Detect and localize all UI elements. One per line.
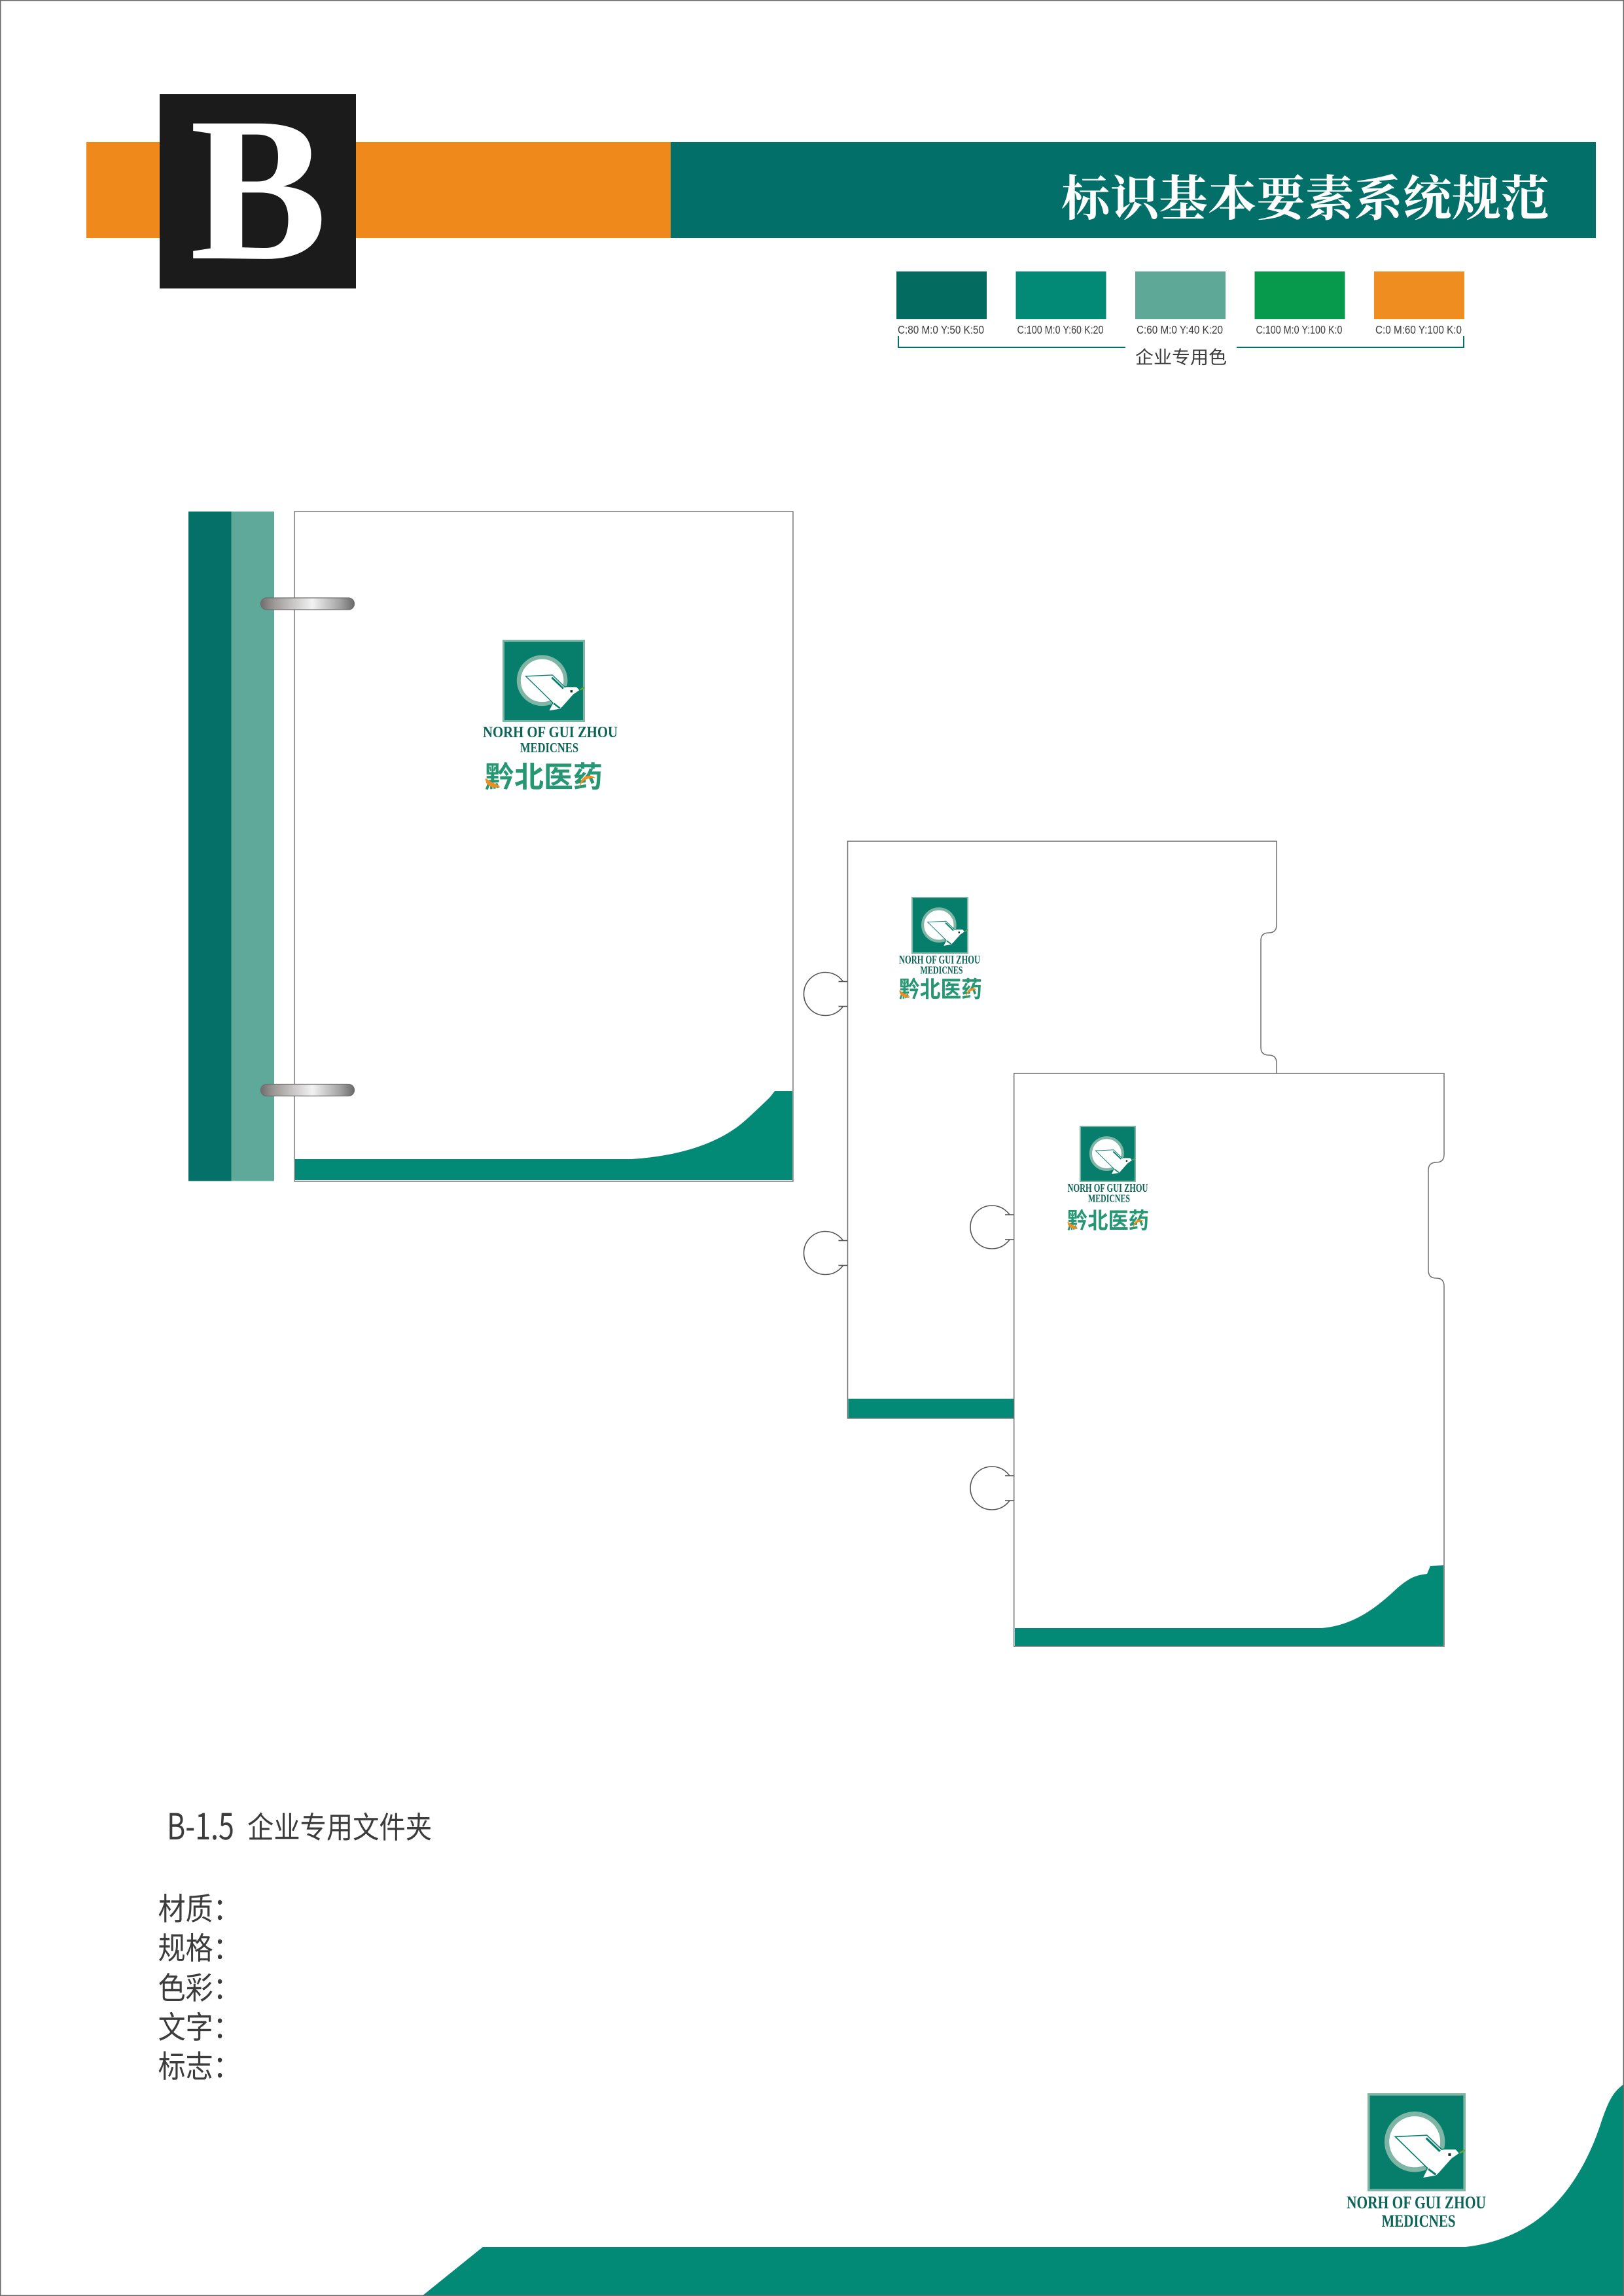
svg-text:C:60 M:0 Y:40 K:20: C:60 M:0 Y:40 K:20	[1137, 323, 1223, 336]
svg-text:C:100 M:0 Y:100 K:0: C:100 M:0 Y:100 K:0	[1256, 323, 1343, 336]
svg-text:MEDICNES: MEDICNES	[1382, 2212, 1456, 2231]
svg-text:B: B	[190, 75, 327, 304]
svg-text:MEDICNES: MEDICNES	[520, 740, 578, 756]
svg-text:C:100 M:0 Y:60 K:20: C:100 M:0 Y:60 K:20	[1017, 323, 1104, 336]
svg-text:C:80 M:0 Y:50 K:50: C:80 M:0 Y:50 K:50	[898, 323, 984, 336]
svg-text:C:0 M:60 Y:100 K:0: C:0 M:60 Y:100 K:0	[1375, 323, 1462, 336]
svg-text:NORH OF GUI ZHOU: NORH OF GUI ZHOU	[483, 724, 618, 741]
svg-text:MEDICNES: MEDICNES	[1088, 1192, 1130, 1205]
svg-text:MEDICNES: MEDICNES	[921, 964, 963, 977]
svg-text:NORH OF GUI ZHOU: NORH OF GUI ZHOU	[1347, 2193, 1486, 2212]
